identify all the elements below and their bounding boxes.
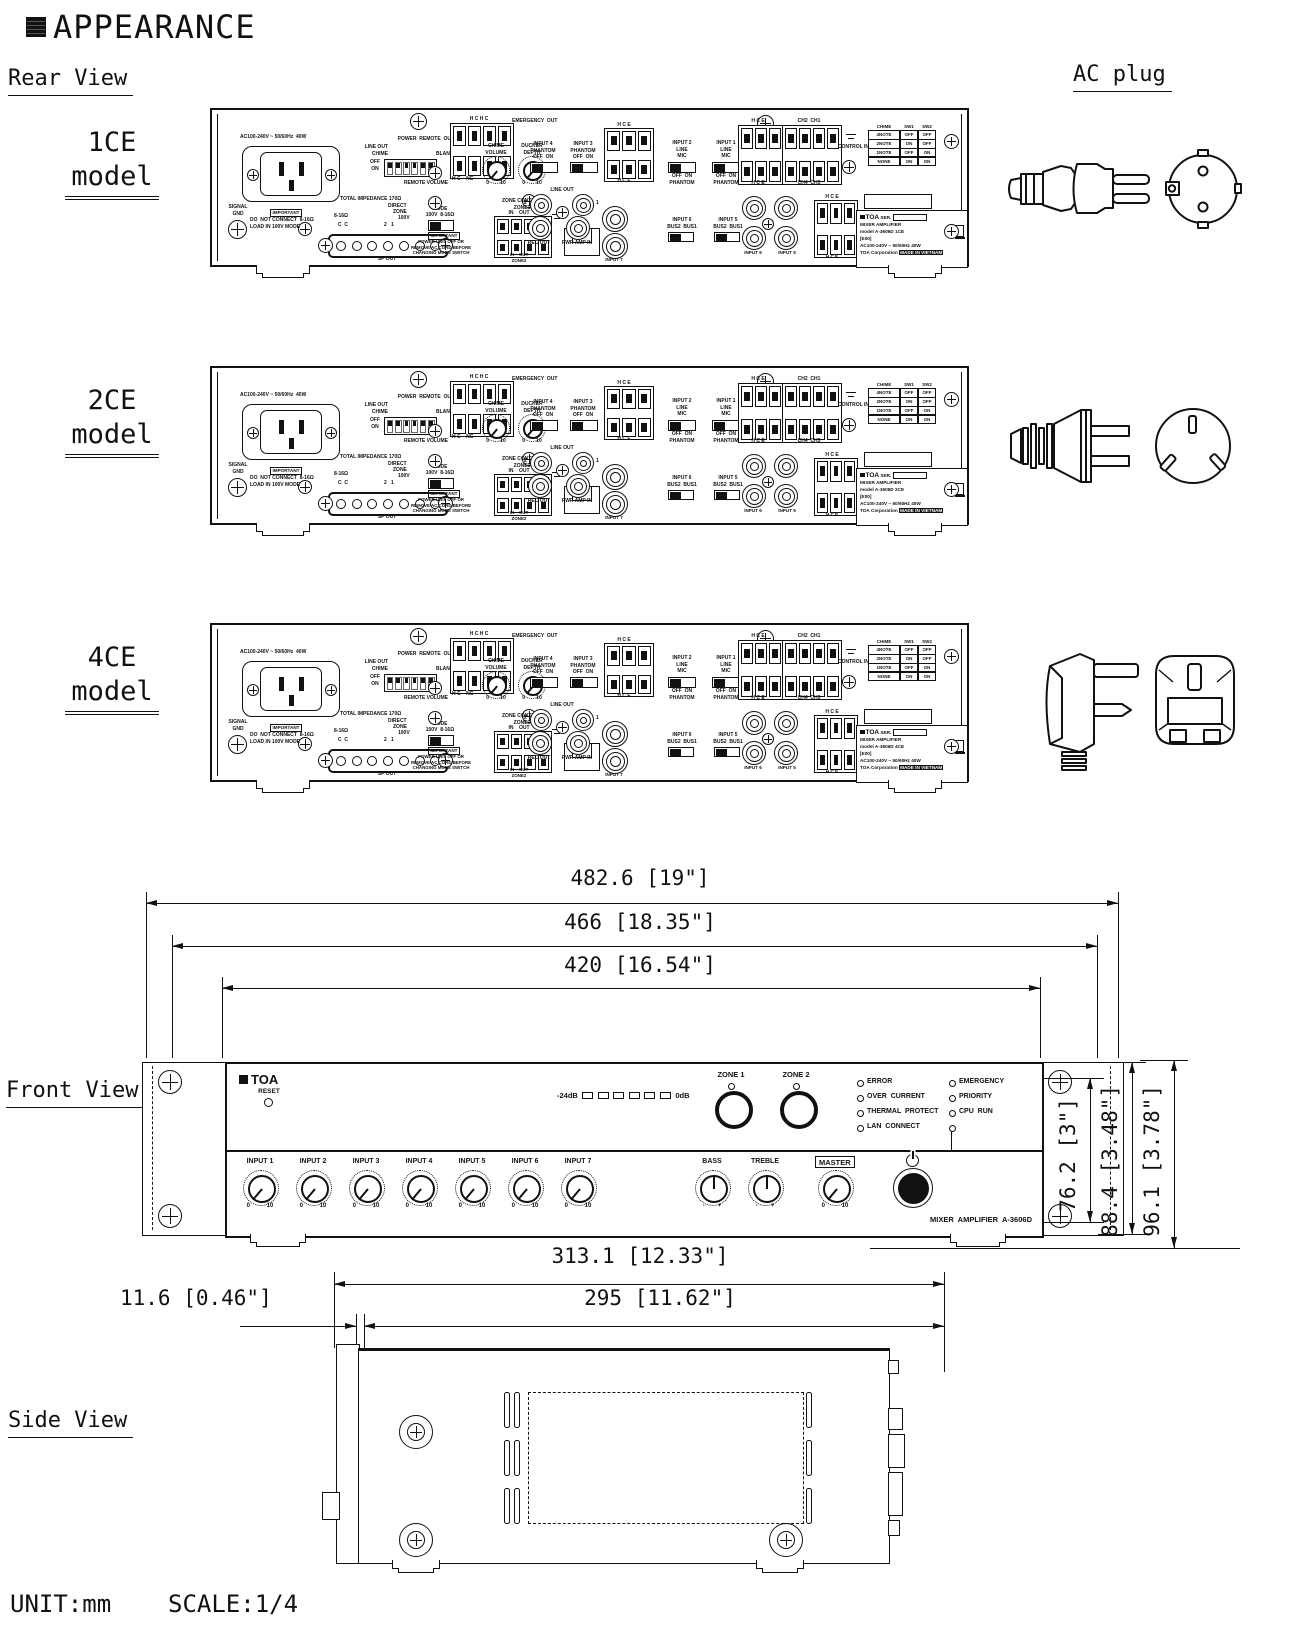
rec-out-jack bbox=[528, 216, 552, 240]
dim-height-884: 88.4 [3.48"] bbox=[1098, 1085, 1122, 1237]
hc-nc-label: H C NC bbox=[452, 691, 473, 698]
100v-label: 100V bbox=[398, 473, 410, 480]
ch-terminal-left bbox=[738, 125, 784, 185]
dim-height-762: 76.2 [3"] bbox=[1056, 1098, 1080, 1212]
cpu-run-led bbox=[949, 1110, 956, 1117]
input3-phantom-switch bbox=[570, 420, 598, 431]
warning-mode-switch: POWER UNIT OFF OR REMOVE AC CORD BEFORE … bbox=[404, 239, 478, 256]
zone2-in-out-label: IN OUT ZONE2 bbox=[494, 510, 544, 521]
panel-edge-line bbox=[217, 629, 218, 776]
input1-label: INPUT 1 bbox=[234, 1158, 286, 1167]
bass-knob[interactable] bbox=[700, 1175, 728, 1203]
input5-bus-label: INPUT 5 BUS2 BUS1 bbox=[706, 475, 750, 488]
uk-plug-drawing bbox=[1016, 646, 1236, 778]
dim-line-466 bbox=[172, 946, 1097, 947]
cc-label: C C bbox=[338, 222, 348, 229]
important-badge: IMPORTANT bbox=[270, 467, 302, 475]
panel-foot bbox=[888, 523, 942, 532]
vent-slot bbox=[514, 1440, 520, 1476]
schuko-plug-drawing bbox=[1005, 138, 1245, 238]
line-out-1-jack bbox=[572, 194, 594, 216]
input6-label: INPUT 6 bbox=[499, 1158, 551, 1167]
input2-phantom-label: OFF ON PHANTOM bbox=[660, 688, 704, 701]
chime-switch-table: CHIMESW1SW2 4NOTEOFFOFF 2NOTEONOFF 1NOTE… bbox=[868, 123, 936, 166]
scale-label: - + bbox=[690, 1203, 734, 1211]
input7-label: INPUT 7 bbox=[596, 257, 632, 263]
meter-min-label: -24dB bbox=[557, 1091, 578, 1100]
master-label: MASTER bbox=[815, 1156, 855, 1168]
jack1-label: 1 bbox=[596, 200, 599, 207]
made-in: MADE IN VIETNAM bbox=[899, 765, 943, 770]
dim-depth-3131: 313.1 [12.33"] bbox=[480, 1244, 800, 1268]
control-in-icon bbox=[846, 392, 856, 393]
hce-label: H C E bbox=[602, 693, 646, 700]
zone1-label: ZONE 1 bbox=[705, 1070, 757, 1079]
tick-line bbox=[1044, 1222, 1104, 1223]
power-rating-label: AC100-240V ~ 50/60Hz 40W bbox=[240, 649, 306, 656]
rear-connector bbox=[888, 1408, 903, 1430]
hce-label: H C E bbox=[738, 633, 778, 640]
toa-logo: TOA bbox=[239, 1072, 278, 1087]
reset-button[interactable] bbox=[264, 1098, 273, 1107]
input5-jack bbox=[774, 741, 798, 765]
signal-gnd-label: SIGNAL GND bbox=[220, 204, 256, 217]
vent-slot bbox=[806, 1488, 812, 1524]
serial-field bbox=[893, 472, 927, 479]
input1-line-mic-switch bbox=[712, 162, 740, 173]
input6-knob[interactable] bbox=[513, 1175, 541, 1203]
over-current-label: OVER CURRENT bbox=[867, 1093, 925, 1102]
input4-phantom-switch bbox=[530, 677, 558, 688]
zone2-button[interactable] bbox=[780, 1091, 818, 1129]
input56-terminal bbox=[814, 715, 858, 773]
chime-volume-knob bbox=[487, 419, 507, 439]
input2-label: INPUT 2 LINE MIC bbox=[660, 655, 704, 675]
ear-dashed-line bbox=[152, 1066, 153, 1230]
off-on-label: OFF ON bbox=[368, 417, 382, 430]
input2-phantom-label: OFF ON PHANTOM bbox=[660, 173, 704, 186]
rack-ear-left bbox=[142, 1062, 227, 1236]
screw-icon bbox=[944, 649, 959, 664]
dim-line-884 bbox=[1132, 1062, 1133, 1234]
line-out-1-jack bbox=[572, 452, 594, 474]
screw-icon bbox=[428, 166, 442, 180]
sp-out-label: SP OUT bbox=[352, 771, 422, 778]
screw-icon bbox=[407, 1531, 425, 1549]
total-impedance-label: TOTAL IMPEDANCE 170Ω bbox=[340, 454, 401, 461]
input3-knob[interactable] bbox=[354, 1175, 382, 1203]
input6-bus-switch bbox=[668, 490, 694, 500]
serial-blank-box bbox=[864, 452, 932, 467]
input7-label: INPUT 7 bbox=[596, 515, 632, 521]
input3-phantom-label: INPUT 3 PHANTOM OFF ON bbox=[562, 399, 604, 419]
input4-phantom-label: INPUT 4 PHANTOM OFF ON bbox=[522, 141, 564, 161]
model-label-plate: TOA SER. MIXER AMPLIFIER model A-3606D 2… bbox=[856, 468, 968, 526]
ch-terminal-left bbox=[738, 383, 784, 443]
pwr-amp-in-label: PWR AMP IN bbox=[556, 240, 598, 247]
front-panel: TOA RESET -24dB 0dB ZONE 1 ZONE 2 ERROR … bbox=[225, 1062, 1044, 1238]
control-in-icon bbox=[848, 396, 854, 397]
level-meter: -24dB 0dB bbox=[557, 1091, 690, 1100]
front-model-label: MIXER AMPLIFIER A-3606D bbox=[797, 1215, 1032, 1224]
rec-out-jack bbox=[528, 731, 552, 755]
made-in: MADE IN VIETNAM bbox=[899, 250, 943, 255]
input2-line-mic-switch bbox=[668, 162, 696, 173]
mode-options-label: 100V 8-16Ω bbox=[414, 727, 466, 734]
control-in-label: CONTROL IN bbox=[838, 659, 869, 666]
screw-icon bbox=[428, 424, 442, 438]
hchc-label: H C H C bbox=[450, 374, 508, 381]
scale-label: 0 10 bbox=[397, 1203, 441, 1211]
control-in-icon bbox=[846, 649, 856, 650]
hce-label: H C E bbox=[738, 438, 778, 445]
line-out-2-jack bbox=[530, 194, 552, 216]
jack2-label: 2 bbox=[524, 715, 527, 722]
treble-knob[interactable] bbox=[753, 1175, 781, 1203]
mode-switch bbox=[428, 735, 454, 746]
side-view-heading: Side View bbox=[8, 1408, 133, 1438]
input5-label: INPUT 5 bbox=[770, 508, 804, 514]
input3-label: INPUT 3 bbox=[340, 1158, 392, 1167]
hce-label: H C E bbox=[812, 769, 852, 775]
extension-line bbox=[1118, 892, 1119, 1058]
side-front-bracket bbox=[336, 1344, 360, 1564]
input7-jack bbox=[602, 233, 628, 259]
extension-line bbox=[334, 1272, 335, 1348]
scale-label: 0 10 bbox=[556, 1203, 600, 1211]
error-led bbox=[857, 1080, 864, 1087]
dim-line-420 bbox=[222, 988, 1040, 989]
plate-rating: AC100-240V ~ 50/60Hz 40W bbox=[860, 758, 964, 765]
power-button[interactable] bbox=[893, 1168, 933, 1208]
input5-jack bbox=[774, 711, 798, 735]
dim-line-961 bbox=[1174, 1060, 1175, 1248]
hce-label: H C E bbox=[602, 436, 646, 443]
screw-icon bbox=[842, 418, 856, 432]
input6-bus-label: INPUT 6 BUS2 BUS1 bbox=[660, 732, 704, 745]
rear-panel: AC100-240V ~ 50/60Hz 40W SIGNAL GND IMPO… bbox=[210, 366, 969, 525]
serial-blank-box bbox=[864, 709, 932, 724]
panel-foot bbox=[256, 523, 310, 532]
panel-edge-line bbox=[217, 114, 218, 261]
pwr-amp-in-jack bbox=[566, 216, 590, 240]
screw-icon bbox=[318, 753, 333, 768]
gnd-screw-icon bbox=[228, 220, 247, 239]
emergency-label: EMERGENCY bbox=[959, 1078, 1004, 1087]
chime-switch-table: CHIMESW1SW2 4NOTEOFFOFF 2NOTEONOFF 1NOTE… bbox=[868, 381, 936, 424]
lan-connect-label: LAN CONNECT bbox=[867, 1123, 920, 1132]
input2-label: INPUT 2 LINE MIC bbox=[660, 398, 704, 418]
rear-panel: AC100-240V ~ 50/60Hz 40W SIGNAL GND IMPO… bbox=[210, 108, 969, 267]
input34-terminal bbox=[604, 386, 654, 440]
scale-label: - + bbox=[743, 1203, 787, 1211]
model-label-4ce: 4CEmodel bbox=[42, 641, 182, 715]
screw-icon bbox=[325, 427, 337, 439]
zone-numbers-label: 2 1 bbox=[384, 222, 394, 229]
rack-screw-icon bbox=[1048, 1070, 1072, 1094]
lan-connect-led bbox=[857, 1125, 864, 1132]
input7-label: INPUT 7 bbox=[596, 772, 632, 778]
screw-icon bbox=[556, 464, 569, 477]
pwr-amp-in-jack bbox=[566, 731, 590, 755]
screw-icon bbox=[777, 1531, 795, 1549]
tick-line bbox=[1044, 1078, 1104, 1079]
off-on-label: OFF ON bbox=[368, 674, 382, 687]
reset-label: RESET bbox=[249, 1088, 289, 1096]
over-current-led bbox=[857, 1095, 864, 1102]
zone-numbers-label: 2 1 bbox=[384, 737, 394, 744]
scale-label: 0 10 bbox=[480, 438, 512, 445]
total-impedance-label: TOTAL IMPEDANCE 170Ω bbox=[340, 196, 401, 203]
input1-line-mic-switch bbox=[712, 677, 740, 688]
screw-icon bbox=[428, 454, 442, 468]
thermal-protect-led bbox=[857, 1110, 864, 1117]
input4-label: INPUT 4 bbox=[393, 1158, 445, 1167]
input56-terminal bbox=[814, 200, 858, 258]
extension-line bbox=[146, 892, 147, 1058]
dim-line-116 bbox=[240, 1326, 356, 1327]
input5-bus-label: INPUT 5 BUS2 BUS1 bbox=[706, 217, 750, 230]
input6-jack bbox=[742, 711, 766, 735]
screw-icon bbox=[410, 113, 427, 130]
master-knob[interactable] bbox=[823, 1175, 851, 1203]
control-in-icon bbox=[848, 138, 854, 139]
screw-icon bbox=[428, 196, 442, 210]
dim-width-4826: 482.6 [19"] bbox=[480, 866, 800, 890]
warning-mode-switch: POWER UNIT OFF OR REMOVE AC CORD BEFORE … bbox=[404, 497, 478, 514]
screw-icon bbox=[944, 392, 959, 407]
input2-phantom-label: OFF ON PHANTOM bbox=[660, 431, 704, 444]
input7-knob[interactable] bbox=[566, 1175, 594, 1203]
hce-label: H C E bbox=[812, 512, 852, 518]
zone2-in-out-label: IN OUT ZONE2 bbox=[494, 767, 544, 778]
extension-line bbox=[1040, 977, 1041, 1058]
side-foot bbox=[756, 1560, 804, 1569]
emergency-out-label: EMERGENCY OUT bbox=[512, 633, 557, 640]
ch4-ch3-label: CH4 CH3 bbox=[782, 438, 836, 445]
screw-icon bbox=[407, 1423, 425, 1441]
rear-view-heading: Rear View bbox=[8, 66, 133, 96]
extension-line bbox=[222, 977, 223, 1058]
input5-jack bbox=[774, 196, 798, 220]
thermal-protect-label: THERMAL PROTECT bbox=[867, 1108, 938, 1117]
warning-100v: DO NOT CONNECT 8-16Ω LOAD IN 100V MODE bbox=[250, 217, 314, 230]
input1-knob[interactable] bbox=[248, 1175, 276, 1203]
input2-label: INPUT 2 LINE MIC bbox=[660, 140, 704, 160]
pwr-amp-in-label: PWR AMP IN bbox=[556, 755, 598, 762]
screw-icon bbox=[247, 684, 259, 696]
ch2-ch1-label: CH2 CH1 bbox=[782, 633, 836, 640]
power-remote-out-label: POWER REMOTE OUT bbox=[370, 394, 454, 401]
rack-screw-icon bbox=[158, 1070, 182, 1094]
line-out-2-jack bbox=[530, 709, 552, 731]
zone-numbers-label: 2 1 bbox=[384, 480, 394, 487]
ch-terminal-left bbox=[738, 640, 784, 700]
side-clip bbox=[322, 1492, 340, 1520]
signal-gnd-label: SIGNAL GND bbox=[220, 462, 256, 475]
toa-logo: TOA bbox=[866, 214, 880, 221]
input6-bus-label: INPUT 6 BUS2 BUS1 bbox=[660, 475, 704, 488]
serial-blank-box bbox=[864, 194, 932, 209]
line-out-jacks-label: LINE OUT bbox=[536, 702, 588, 709]
dim-line-4826 bbox=[146, 903, 1118, 904]
vent-slot bbox=[806, 1440, 812, 1476]
dim-width-466: 466 [18.35"] bbox=[480, 910, 800, 934]
line-out-dip-label: LINE OUT bbox=[352, 402, 388, 409]
screw-icon bbox=[556, 206, 569, 219]
vent-dashed-outline bbox=[528, 1392, 804, 1524]
power-icon bbox=[906, 1154, 919, 1167]
input6-label: INPUT 6 bbox=[736, 765, 770, 771]
vent-slot bbox=[504, 1392, 510, 1428]
input7-jack bbox=[602, 464, 628, 490]
sp-out-label: SP OUT bbox=[352, 514, 422, 521]
ac-inlet bbox=[242, 661, 340, 717]
cc-label: C C bbox=[338, 737, 348, 744]
vent-slot bbox=[806, 1392, 812, 1428]
power-remote-out-label: POWER REMOTE OUT bbox=[370, 651, 454, 658]
gnd-screw-icon bbox=[228, 478, 247, 497]
plate-rating: AC100-240V ~ 50/60Hz 40W bbox=[860, 243, 964, 250]
jack2-label: 2 bbox=[524, 458, 527, 465]
power-rating-label: AC100-240V ~ 50/60Hz 40W bbox=[240, 134, 306, 141]
scale-label: 0 10 bbox=[516, 438, 548, 445]
important-badge: IMPORTANT bbox=[270, 209, 302, 217]
hce-label: H C E bbox=[738, 180, 778, 187]
rec-out-jack bbox=[528, 474, 552, 498]
front-foot bbox=[950, 1234, 1006, 1243]
screw-icon bbox=[325, 169, 337, 181]
treble-label: TREBLE bbox=[739, 1158, 791, 1167]
ac-inlet bbox=[242, 146, 340, 202]
panel-foot bbox=[256, 780, 310, 789]
panel-foot bbox=[888, 780, 942, 789]
input4-knob[interactable] bbox=[407, 1175, 435, 1203]
screw-icon bbox=[944, 224, 959, 239]
mode-options-label: 100V 8-16Ω bbox=[414, 470, 466, 477]
extension-line bbox=[172, 935, 173, 1058]
jack2-label: 2 bbox=[524, 200, 527, 207]
control-in-label: CONTROL IN bbox=[838, 402, 869, 409]
ohm-label: 8-16Ω bbox=[334, 728, 348, 735]
plate-rating: AC100-240V ~ 50/60Hz 40W bbox=[860, 501, 964, 508]
ch4-ch3-label: CH4 CH3 bbox=[782, 695, 836, 702]
control-in-icon bbox=[848, 653, 854, 654]
screw-icon bbox=[842, 160, 856, 174]
emergency-out-label: EMERGENCY OUT bbox=[512, 376, 557, 383]
screw-icon bbox=[325, 684, 337, 696]
bass-label: BASS bbox=[686, 1158, 738, 1167]
input7-jack bbox=[602, 206, 628, 232]
serial-label: SER. bbox=[880, 473, 891, 478]
control-in-icon bbox=[846, 134, 856, 135]
input4-phantom-label: INPUT 4 PHANTOM OFF ON bbox=[522, 656, 564, 676]
input5-knob[interactable] bbox=[460, 1175, 488, 1203]
warning-100v: DO NOT CONNECT 8-16Ω LOAD IN 100V MODE bbox=[250, 732, 314, 745]
hce-label: H C E bbox=[602, 178, 646, 185]
line-out-1-jack bbox=[572, 709, 594, 731]
model-label-plate: TOA SER. MIXER AMPLIFIER model A-3606D 1… bbox=[856, 210, 968, 268]
input5-label: INPUT 5 bbox=[770, 250, 804, 256]
page-title: APPEARANCE bbox=[26, 8, 256, 46]
chime-volume-knob bbox=[487, 676, 507, 696]
ch-terminal-right bbox=[782, 640, 842, 700]
mode-options-label: 100V 8-16Ω bbox=[414, 212, 466, 219]
toa-logo-square bbox=[239, 1075, 248, 1084]
rear-connector bbox=[888, 1520, 900, 1536]
chime-dip-label: CHIME bbox=[352, 666, 388, 673]
remote-volume-label: REMOTE VOLUME bbox=[386, 438, 448, 445]
pwr-amp-in-label: PWR AMP IN bbox=[556, 498, 598, 505]
rear-connector bbox=[888, 1360, 899, 1374]
dim-width-420: 420 [16.54"] bbox=[480, 953, 800, 977]
zone1-led bbox=[728, 1083, 735, 1090]
cc-label: C C bbox=[338, 480, 348, 487]
chime-dip-label: CHIME bbox=[352, 151, 388, 158]
screw-icon bbox=[428, 681, 442, 695]
screw-icon bbox=[247, 169, 259, 181]
dim-depth-295: 295 [11.62"] bbox=[500, 1286, 820, 1310]
panel-divider bbox=[227, 1150, 1042, 1152]
ac-inlet bbox=[242, 404, 340, 460]
hc-nc-label: H C NC bbox=[452, 176, 473, 183]
led-leader-line bbox=[951, 1131, 952, 1150]
corporation: TOA Corporation bbox=[860, 765, 898, 770]
important-badge: IMPORTANT bbox=[270, 724, 302, 732]
priority-led bbox=[949, 1095, 956, 1102]
rear-panel: AC100-240V ~ 50/60Hz 40W SIGNAL GND IMPO… bbox=[210, 623, 969, 782]
input56-terminal bbox=[814, 458, 858, 516]
scale-label: SCALE:1/4 bbox=[168, 1590, 298, 1618]
screw-icon bbox=[318, 496, 333, 511]
mode-switch bbox=[428, 220, 454, 231]
scale-label: 0 10 bbox=[480, 180, 512, 187]
hc-nc-label: H C NC bbox=[452, 434, 473, 441]
screw-icon bbox=[944, 134, 959, 149]
vent-slot bbox=[504, 1488, 510, 1524]
mode-switch bbox=[428, 478, 454, 489]
model-label-2ce: 2CEmodel bbox=[42, 384, 182, 458]
input7-jack bbox=[602, 721, 628, 747]
input2-knob[interactable] bbox=[301, 1175, 329, 1203]
input6-bus-switch bbox=[668, 232, 694, 242]
chime-dip-label: CHIME bbox=[352, 409, 388, 416]
panel-edge-line bbox=[217, 372, 218, 519]
input6-jack bbox=[742, 196, 766, 220]
ohm-label: 8-16Ω bbox=[334, 471, 348, 478]
panel-foot bbox=[256, 265, 310, 274]
ch-terminal-right bbox=[782, 125, 842, 185]
input6-bus-label: INPUT 6 BUS2 BUS1 bbox=[660, 217, 704, 230]
input2-line-mic-switch bbox=[668, 677, 696, 688]
dim-line-3131 bbox=[334, 1284, 944, 1285]
zone1-button[interactable] bbox=[715, 1091, 753, 1129]
rec-out-label: REC OUT bbox=[520, 498, 558, 505]
remote-volume-label: REMOTE VOLUME bbox=[386, 695, 448, 702]
pwr-amp-in-jack bbox=[566, 474, 590, 498]
ch4-ch3-label: CH4 CH3 bbox=[782, 180, 836, 187]
gnd-screw-icon bbox=[228, 735, 247, 754]
front-view-heading: Front View bbox=[6, 1078, 144, 1108]
line-out-2-jack bbox=[530, 452, 552, 474]
input7-jack bbox=[602, 491, 628, 517]
baseline bbox=[870, 1248, 1240, 1249]
meter-max-label: 0dB bbox=[675, 1091, 689, 1100]
scale-label: 0 10 bbox=[813, 1203, 857, 1211]
input5-jack bbox=[774, 484, 798, 508]
screw-icon bbox=[762, 476, 774, 488]
scale-label: 0 10 bbox=[291, 1203, 335, 1211]
